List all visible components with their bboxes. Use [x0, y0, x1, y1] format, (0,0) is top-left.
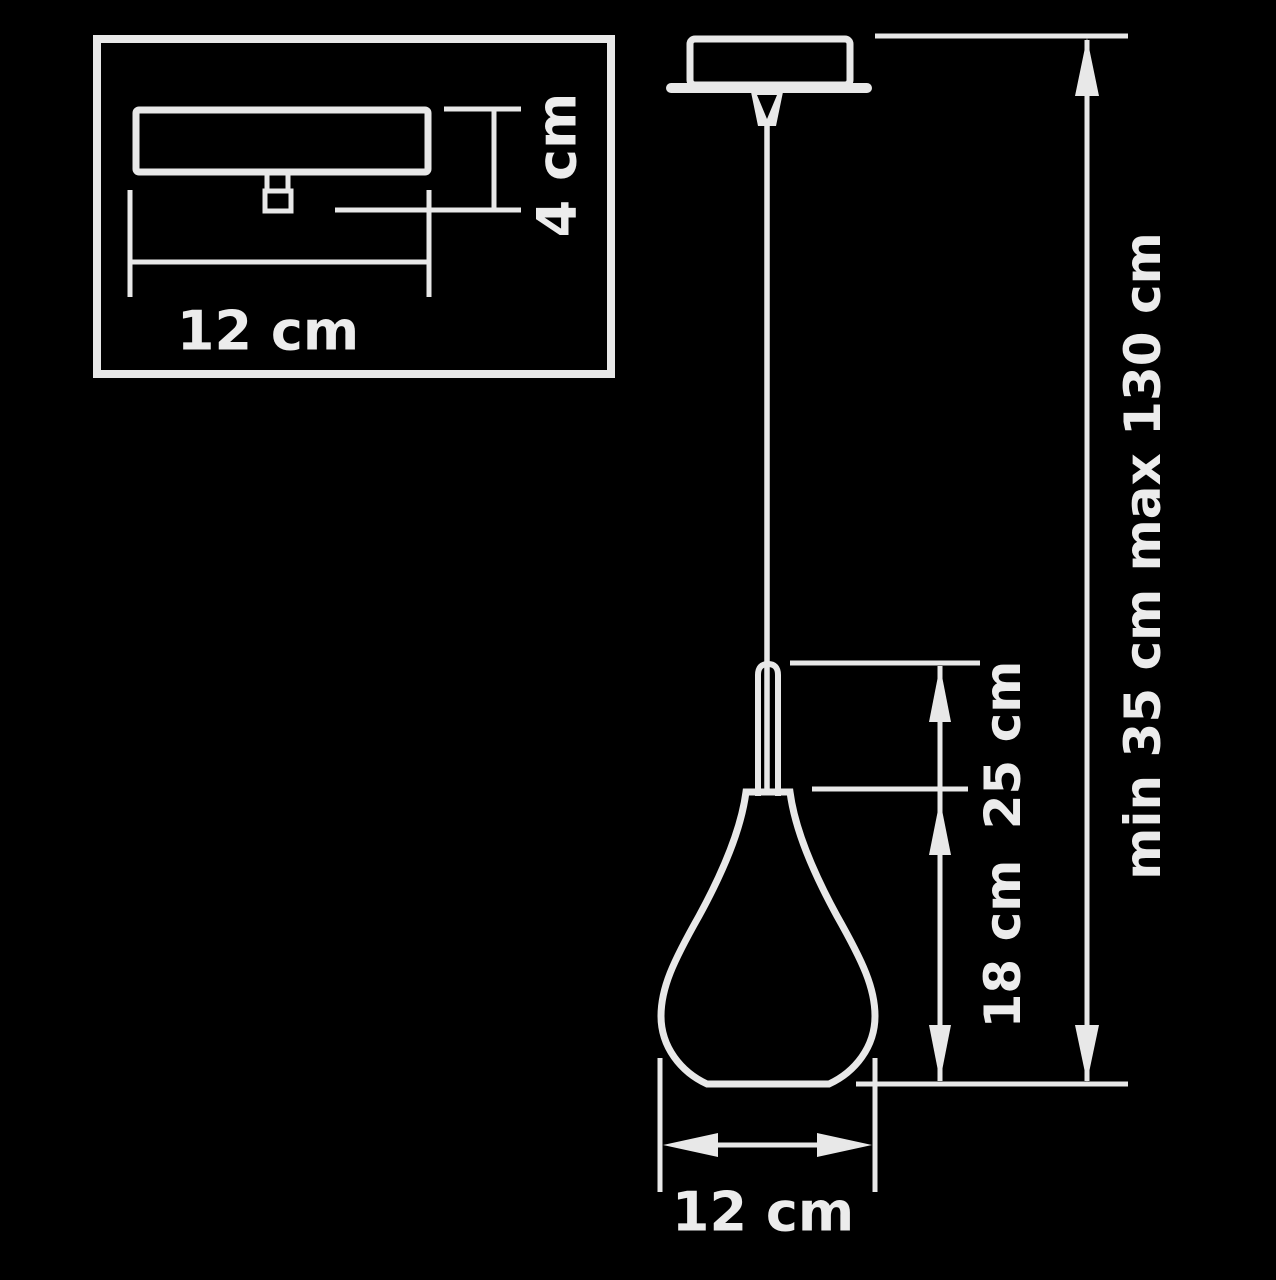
arrowhead-up-shade-top	[929, 800, 951, 855]
canopy-box	[690, 39, 850, 85]
arrowhead-down-body-bottom	[929, 1025, 951, 1081]
arrowhead-right-shade-width	[817, 1133, 872, 1157]
suspension-height-label: min 35 cm max 130 cm	[1114, 232, 1172, 879]
dimension-annotations: 25 cm 18 cm min 35 cm max 130 cm 12 cm	[660, 36, 1172, 1244]
shade-width-label: 12 cm	[672, 1181, 854, 1244]
arrowhead-up-body-top	[929, 666, 951, 722]
pendant-lamp-dimension-diagram: 12 cm 4 cm 25 cm 18 cm min 35 c	[0, 0, 1276, 1280]
arrowhead-up-suspension	[1075, 38, 1099, 96]
arrowhead-left-shade-width	[663, 1133, 718, 1157]
pendant-side-view	[661, 39, 875, 1084]
shade-outline	[661, 792, 875, 1084]
inset-canopy-connector-socket	[265, 191, 291, 211]
body-height-label: 25 cm	[974, 661, 1032, 830]
inset-detail-view: 12 cm 4 cm	[97, 39, 611, 374]
inset-height-label: 4 cm	[526, 93, 589, 238]
inset-width-label: 12 cm	[177, 300, 359, 363]
shade-height-label: 18 cm	[974, 860, 1032, 1029]
arrowhead-down-suspension	[1075, 1025, 1099, 1082]
inset-canopy-outline	[136, 110, 428, 172]
